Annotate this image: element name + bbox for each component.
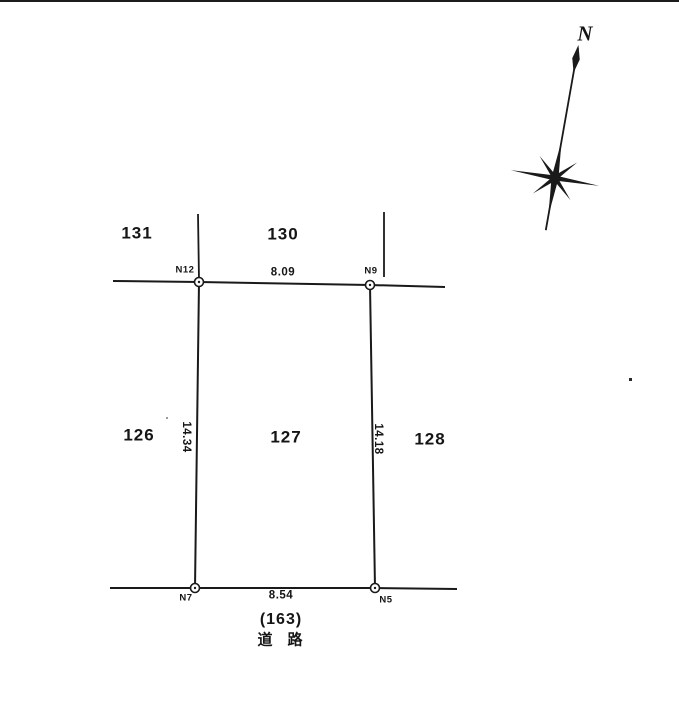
compass-north-label: N bbox=[577, 24, 592, 45]
dimension-left: 14.34 bbox=[179, 421, 191, 452]
lot-label-131: 131 bbox=[121, 225, 152, 242]
scan-speck bbox=[166, 417, 168, 419]
survey-point-n12 bbox=[195, 278, 204, 287]
compass-arrowhead bbox=[570, 44, 582, 73]
point-label-n7: N7 bbox=[179, 593, 192, 603]
lot-label-127: 127 bbox=[270, 429, 301, 446]
boundary-line-left bbox=[195, 282, 199, 588]
lot-label-130: 130 bbox=[267, 226, 298, 243]
lot-label-126: 126 bbox=[123, 427, 154, 444]
compass-rose bbox=[501, 37, 622, 238]
neighbor-boundary-stub-left bbox=[198, 214, 199, 280]
dimension-top: 8.09 bbox=[271, 267, 295, 279]
boundary-line-top bbox=[113, 281, 445, 287]
lot-label-128: 128 bbox=[414, 431, 445, 448]
dimension-bottom: 8.54 bbox=[269, 590, 293, 602]
point-label-n9: N9 bbox=[364, 266, 377, 276]
road-number: (163) bbox=[260, 612, 302, 628]
survey-map-page: 131 130 126 127 128 N12 N9 N7 N5 8.09 8.… bbox=[0, 0, 679, 717]
survey-point-n5 bbox=[371, 584, 380, 593]
point-label-n5: N5 bbox=[379, 595, 392, 605]
point-label-n12: N12 bbox=[176, 265, 195, 275]
survey-point-n7 bbox=[191, 584, 200, 593]
road-name: 道 路 bbox=[257, 633, 302, 648]
scan-speck bbox=[629, 378, 632, 381]
dimension-right: 14.18 bbox=[371, 423, 383, 454]
survey-drawing bbox=[0, 0, 679, 717]
survey-point-n9 bbox=[366, 281, 375, 290]
